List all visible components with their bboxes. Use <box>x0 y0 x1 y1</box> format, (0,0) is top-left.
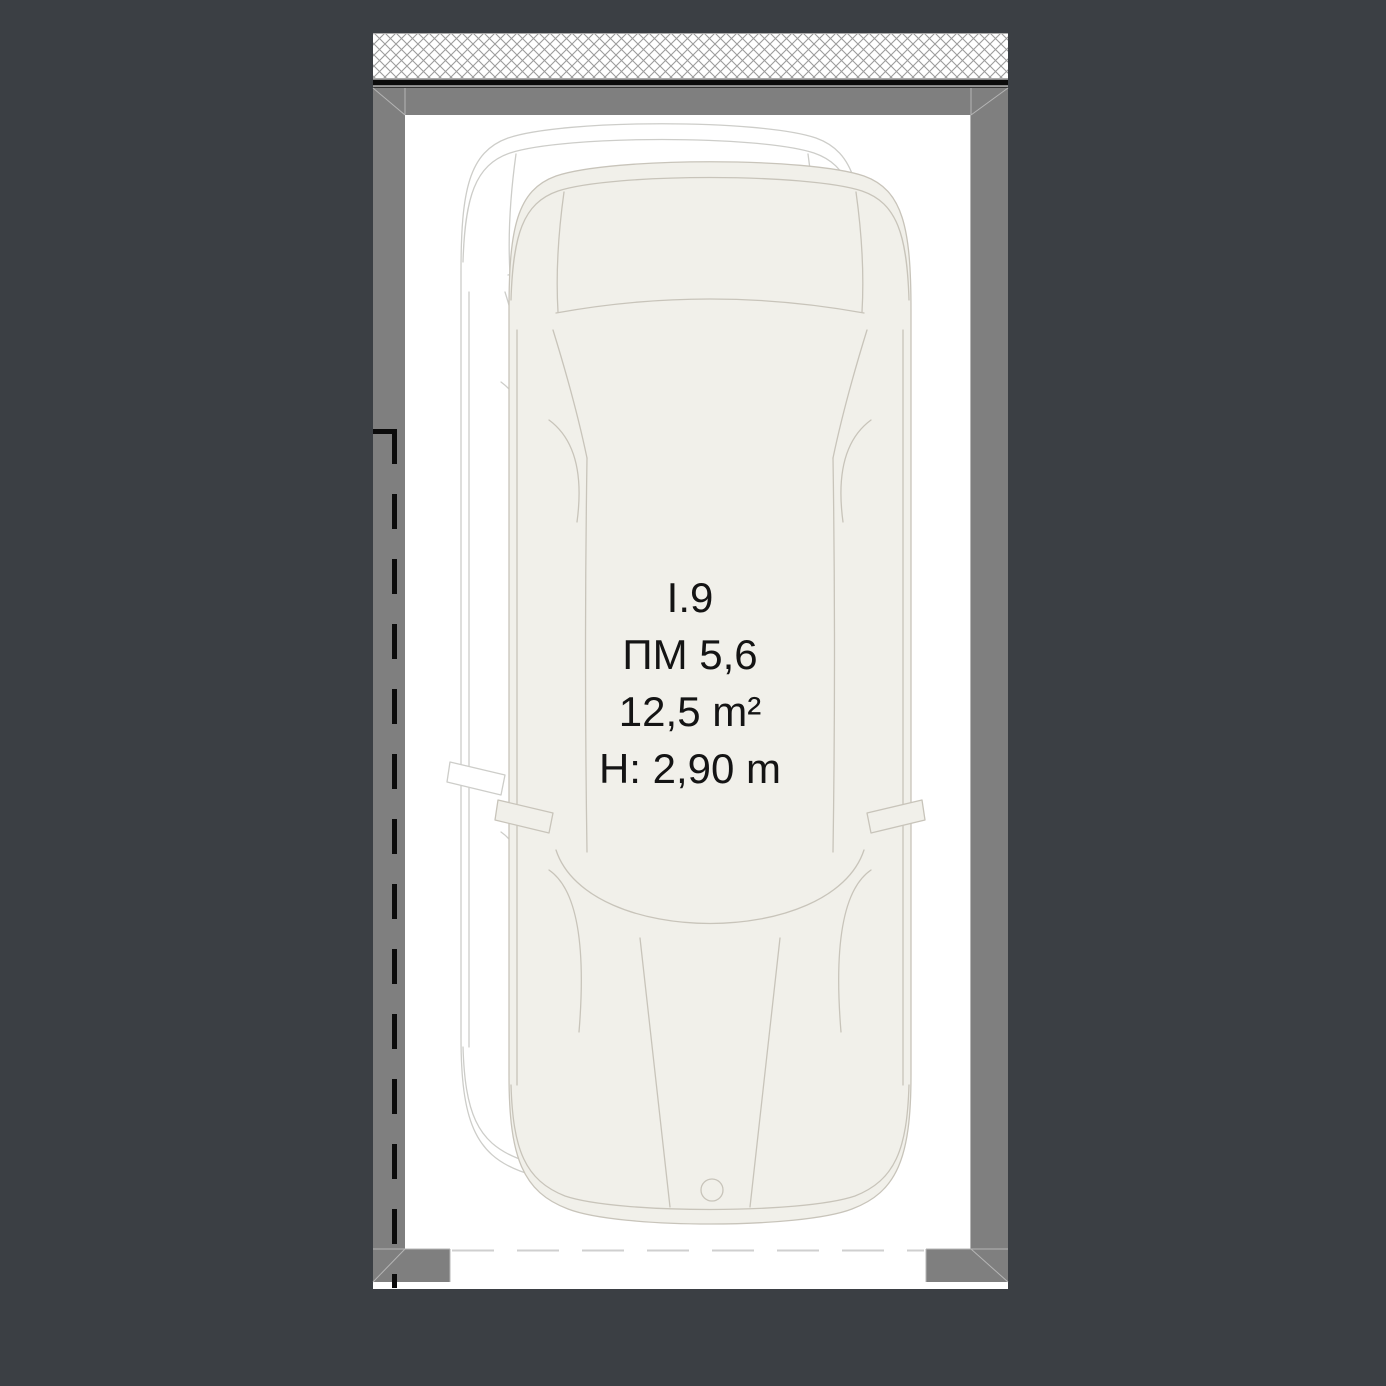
wall-bottom-left-segment <box>405 1249 450 1282</box>
parking-plan-drawing <box>0 0 1386 1386</box>
floor-plan-canvas: I.9 ПМ 5,6 12,5 m² H: 2,90 m <box>0 0 1386 1386</box>
insulation-hatch-band <box>373 33 1008 79</box>
wall-left <box>373 88 405 1249</box>
wall-right <box>971 88 1008 1249</box>
structure-black-line-thick <box>373 80 1008 86</box>
wall-top <box>373 88 1008 115</box>
car-top-view <box>495 162 925 1224</box>
structure-black-line-thin <box>373 87 1008 89</box>
wall-bottom-right-segment <box>926 1249 971 1282</box>
